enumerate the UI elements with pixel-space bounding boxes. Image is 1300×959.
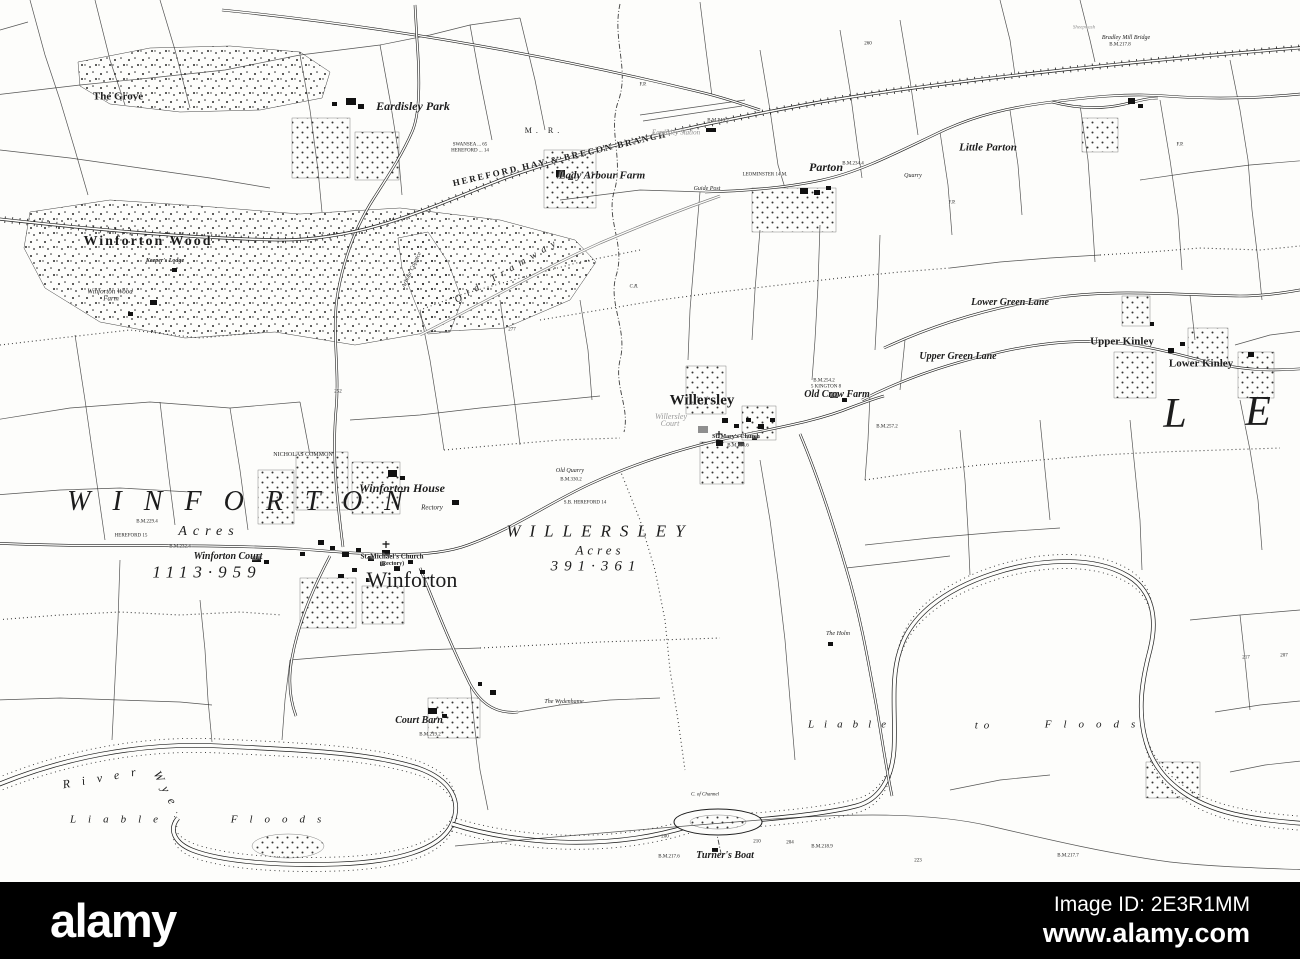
- image-id-block: Image ID: 2E3R1MM www.alamy.com: [1043, 892, 1250, 950]
- map-river-wye: [0, 555, 1300, 872]
- alamy-stock-map-image: The GroveEardisley ParkSWANSEA ... 65HER…: [0, 0, 1300, 959]
- map-canvas: The GroveEardisley ParkSWANSEA ... 65HER…: [0, 0, 1300, 882]
- image-id-text: Image ID: 2E3R1MM: [1043, 892, 1250, 917]
- alamy-url-text: www.alamy.com: [1043, 917, 1250, 949]
- alamy-logo: alamy: [50, 893, 176, 948]
- alamy-watermark-bar: alamy Image ID: 2E3R1MM www.alamy.com: [0, 882, 1300, 959]
- map-linework: [0, 0, 1300, 882]
